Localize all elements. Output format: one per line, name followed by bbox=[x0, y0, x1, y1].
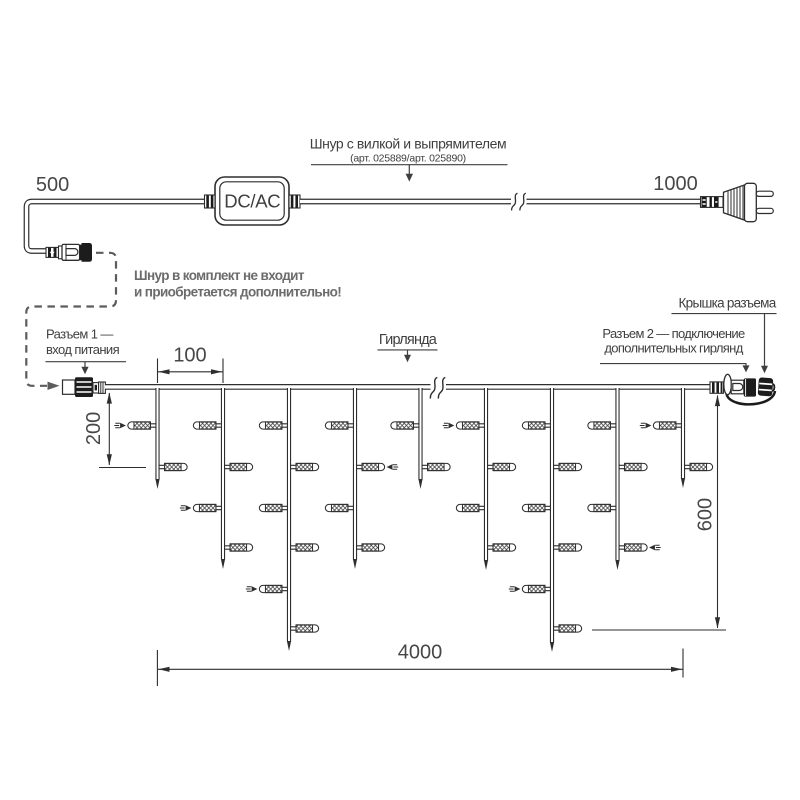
svg-text:DC/AC: DC/AC bbox=[224, 191, 280, 212]
svg-text:1000: 1000 bbox=[653, 173, 698, 195]
svg-text:4000: 4000 bbox=[398, 642, 443, 664]
svg-text:Гирлянда: Гирлянда bbox=[379, 332, 438, 348]
svg-text:Шнур в комплект не входит: Шнур в комплект не входит bbox=[134, 268, 305, 283]
svg-text:Разъем 2 — подключение: Разъем 2 — подключение bbox=[602, 326, 745, 341]
svg-text:200: 200 bbox=[83, 412, 105, 445]
svg-text:Шнур с вилкой и выпрямителем: Шнур с вилкой и выпрямителем bbox=[310, 136, 507, 152]
svg-text:дополнительных гирлянд: дополнительных гирлянд bbox=[604, 341, 743, 356]
svg-text:(арт. 025889/арт. 025890): (арт. 025889/арт. 025890) bbox=[350, 153, 466, 165]
svg-text:и приобретается дополнительно!: и приобретается дополнительно! bbox=[134, 285, 341, 300]
svg-text:100: 100 bbox=[173, 345, 206, 367]
svg-text:вход питания: вход питания bbox=[46, 342, 120, 357]
svg-text:Разъем 1 —: Разъем 1 — bbox=[46, 327, 113, 342]
svg-text:600: 600 bbox=[695, 498, 717, 531]
svg-text:500: 500 bbox=[36, 174, 69, 196]
svg-text:Крышка разъема: Крышка разъема bbox=[678, 296, 776, 311]
